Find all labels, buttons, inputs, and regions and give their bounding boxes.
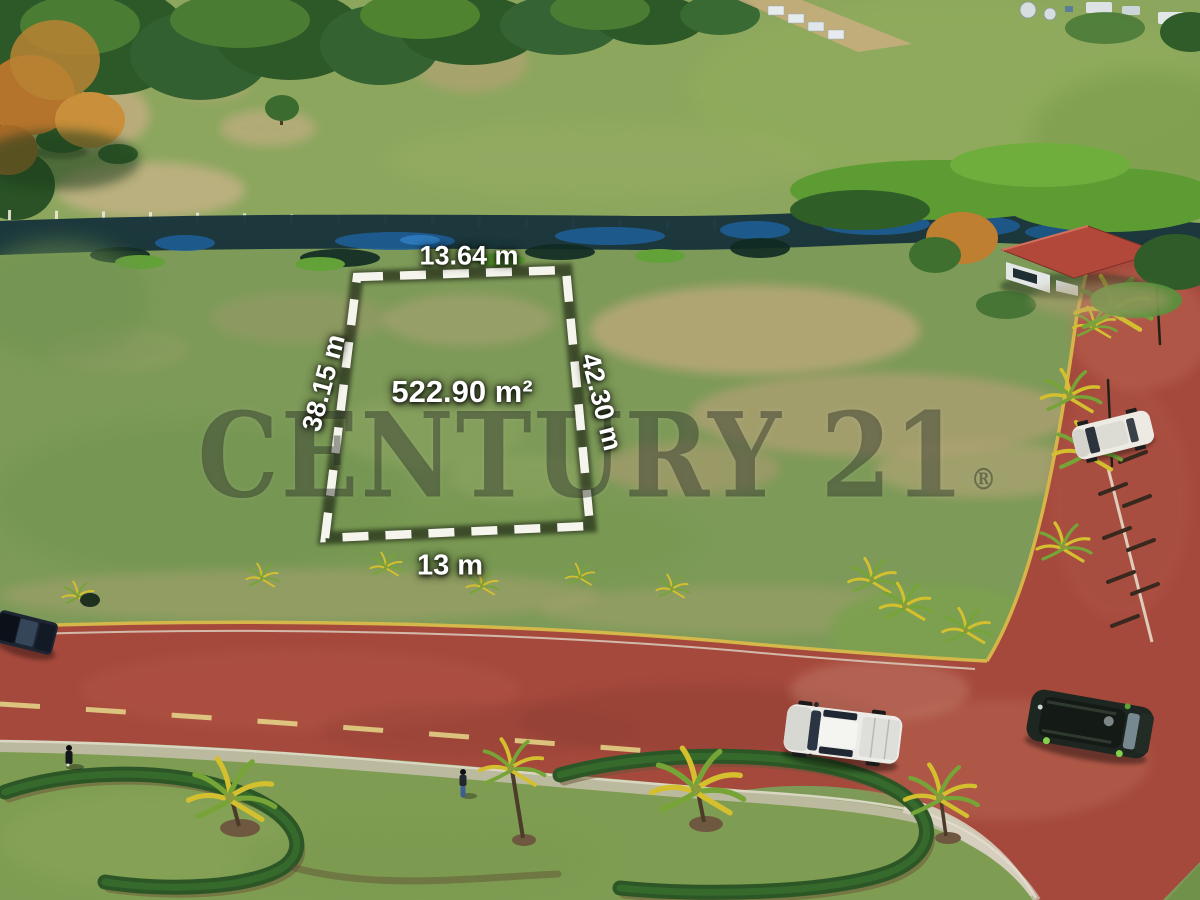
registered-trademark-symbol: ® xyxy=(970,463,996,498)
area-label: 522.90 m² xyxy=(391,374,532,410)
dimension-label-bottom: 13 m xyxy=(417,550,483,583)
dimension-label-top: 13.64 m xyxy=(419,241,518,272)
aerial-photo-land-plot: CENTURY 21® 13.64 m 38.15 m 42.30 m 522.… xyxy=(0,0,1200,900)
